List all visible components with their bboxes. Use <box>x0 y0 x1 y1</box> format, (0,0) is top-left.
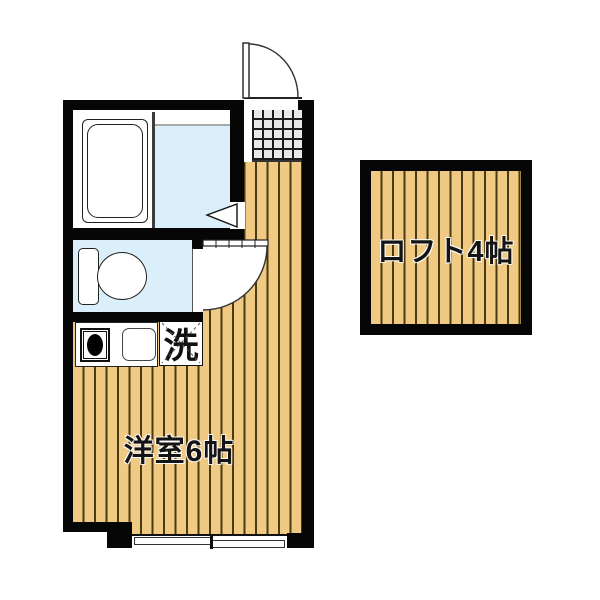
toilet-door-swing-area <box>203 246 267 310</box>
loft-room-label: ロフト4帖 <box>369 228 523 270</box>
toilet-door-sill <box>203 240 268 246</box>
bath-folding-door-triangle <box>207 204 237 227</box>
main-room-label: 洋室6帖 <box>100 426 258 470</box>
entrance-door-leaf <box>243 43 249 98</box>
washer-dashed-x <box>162 323 200 363</box>
door-symbols-overlay <box>0 0 600 600</box>
entrance-door-arc <box>249 44 298 97</box>
floor-plan-canvas: 洗 洋室6帖 ロフト4帖 <box>0 0 600 600</box>
